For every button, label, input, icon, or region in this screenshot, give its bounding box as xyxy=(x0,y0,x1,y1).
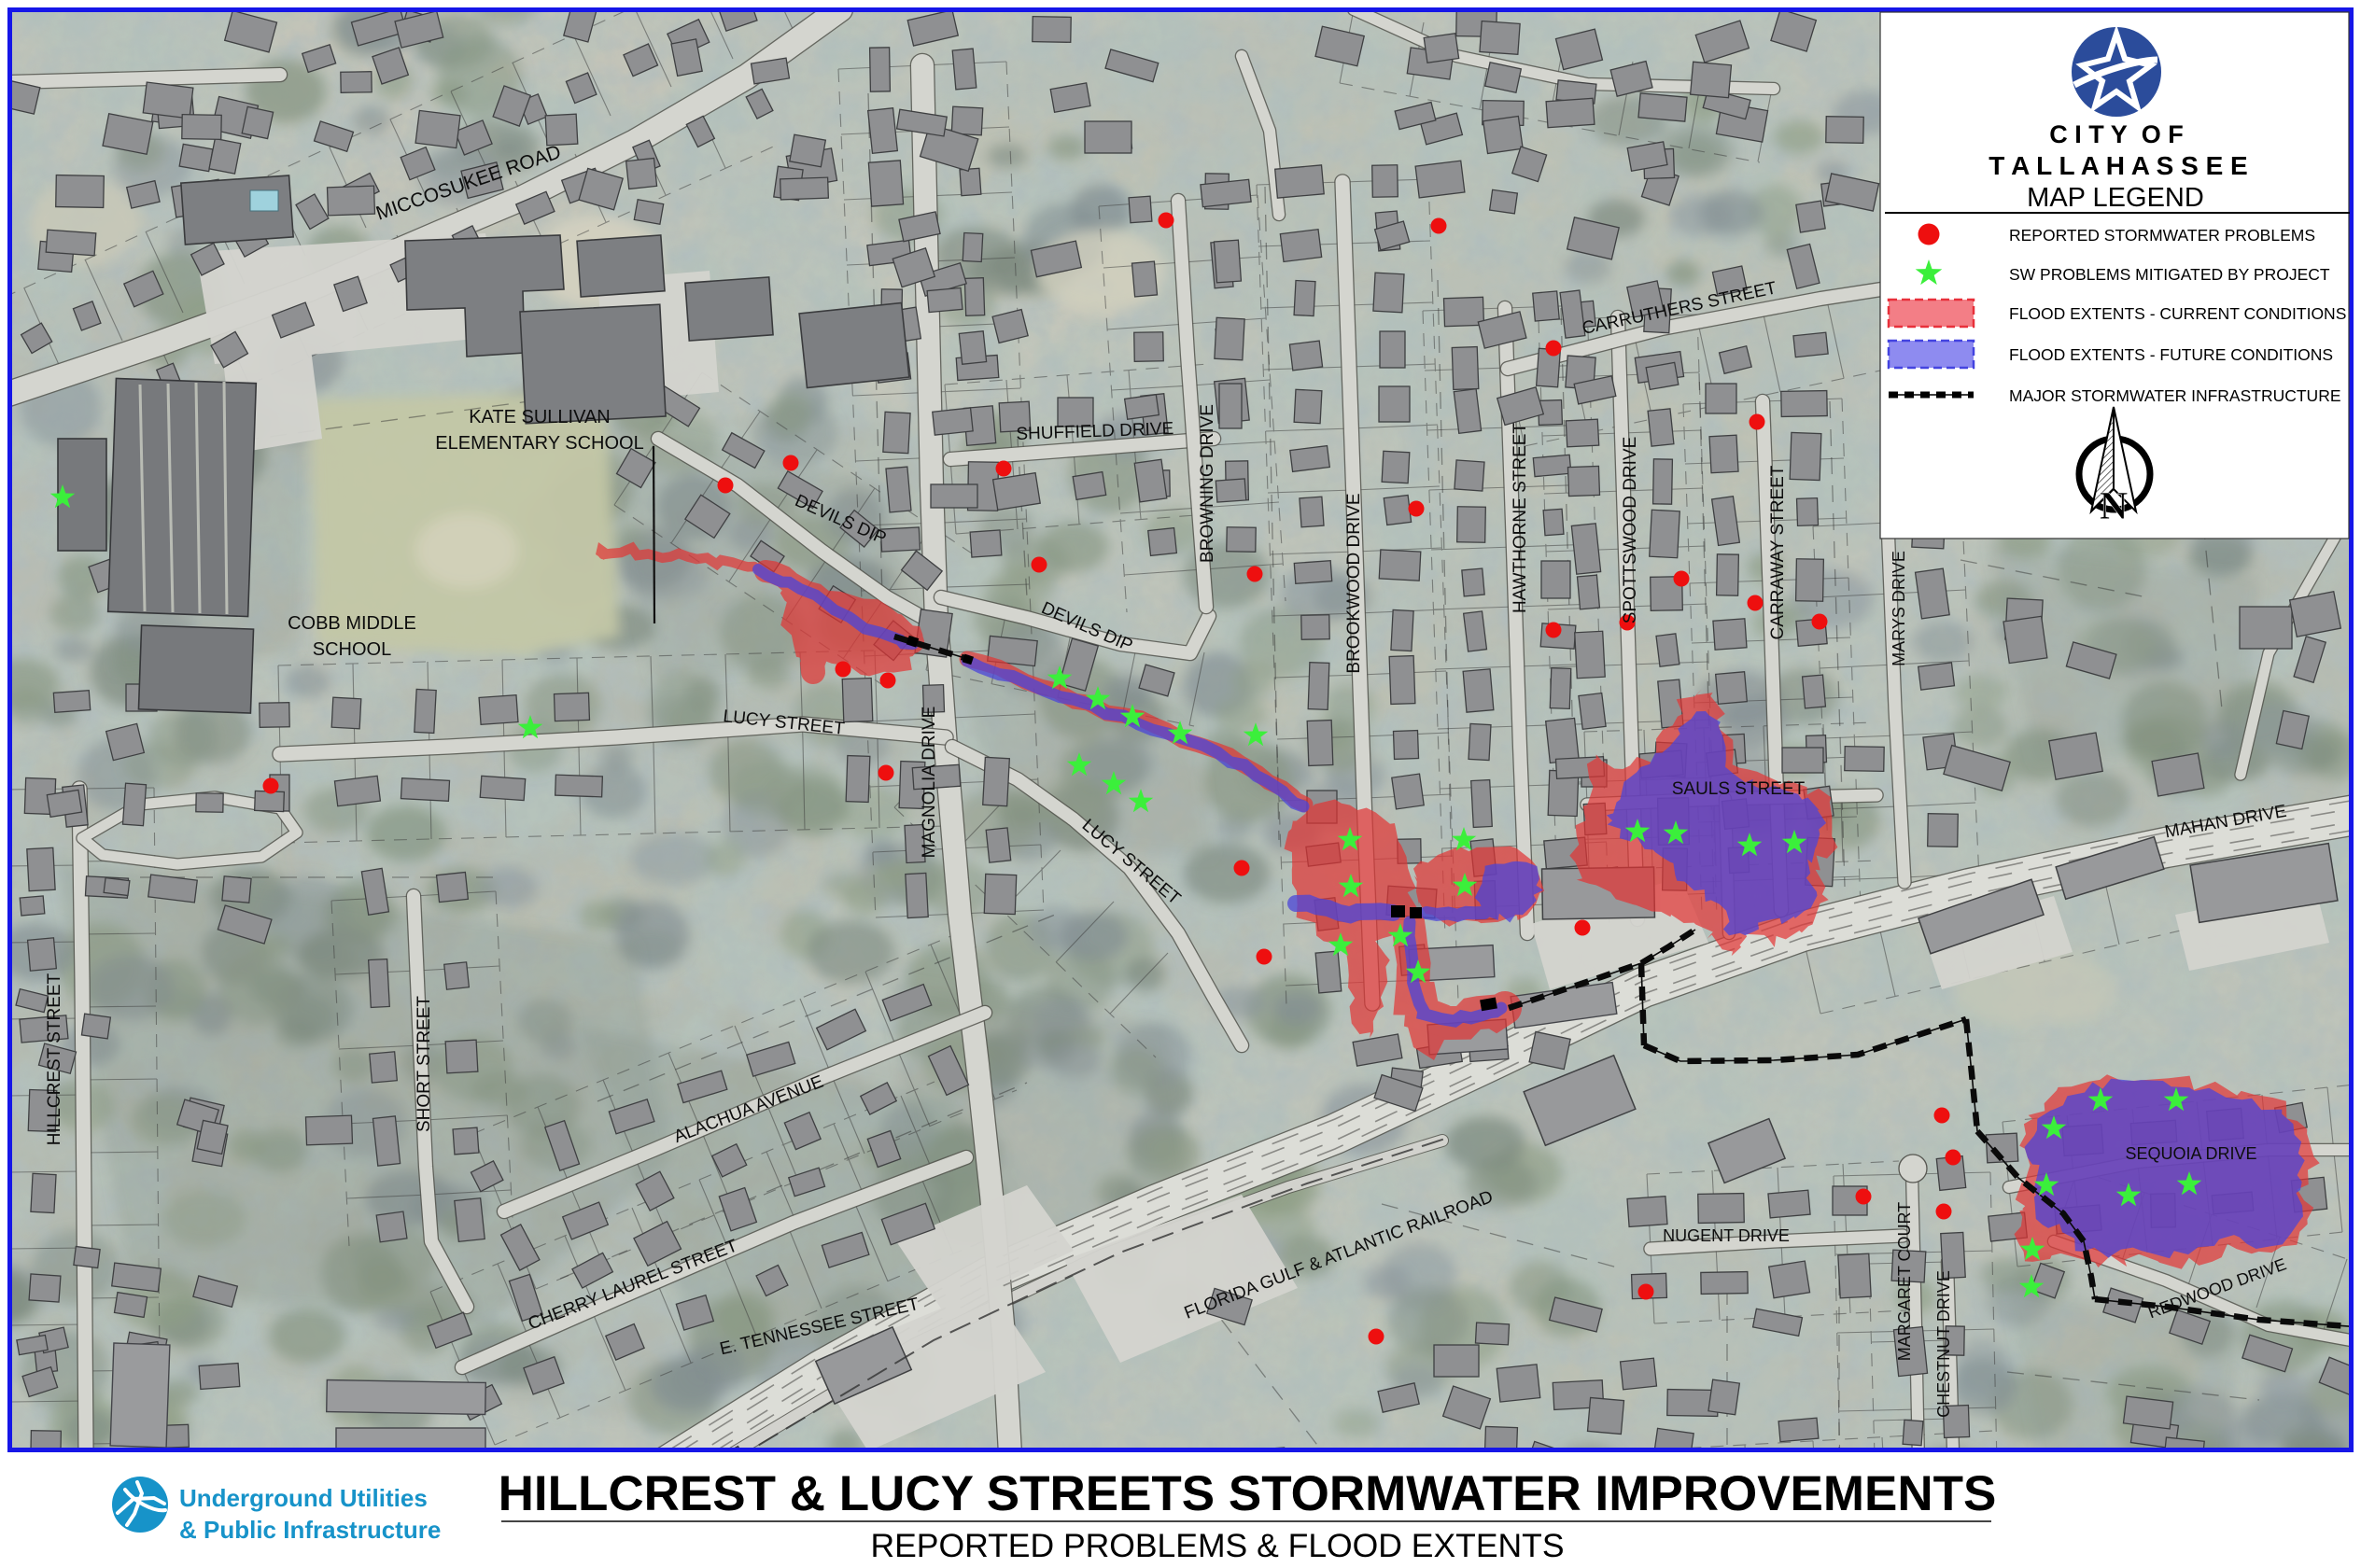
svg-text:NUGENT DRIVE: NUGENT DRIVE xyxy=(1663,1226,1790,1245)
svg-text:Underground Utilities: Underground Utilities xyxy=(179,1484,428,1512)
svg-text:CHESTNUT DRIVE: CHESTNUT DRIVE xyxy=(1934,1270,1953,1418)
svg-text:SHORT STREET: SHORT STREET xyxy=(415,996,434,1132)
svg-text:ELEMENTARY SCHOOL: ELEMENTARY SCHOOL xyxy=(435,433,643,454)
svg-text:HILLCREST STREET: HILLCREST STREET xyxy=(45,973,64,1145)
svg-text:KATE SULLIVAN: KATE SULLIVAN xyxy=(469,407,611,427)
svg-text:MAJOR STORMWATER INFRASTRUCTUR: MAJOR STORMWATER INFRASTRUCTURE xyxy=(2009,386,2341,405)
svg-text:CARRAWAY STREET: CARRAWAY STREET xyxy=(1768,465,1788,639)
svg-text:MAP LEGEND: MAP LEGEND xyxy=(2027,183,2204,213)
svg-text:BROWNING DRIVE: BROWNING DRIVE xyxy=(1198,404,1217,563)
svg-text:SPOTTSWOOD DRIVE: SPOTTSWOOD DRIVE xyxy=(1621,437,1640,624)
svg-text:MAGNOLIA DRIVE: MAGNOLIA DRIVE xyxy=(920,707,939,859)
svg-text:SEQUOIA DRIVE: SEQUOIA DRIVE xyxy=(2125,1144,2256,1163)
svg-text:BROOKWOOD DRIVE: BROOKWOOD DRIVE xyxy=(1344,493,1364,673)
svg-text:N: N xyxy=(2100,485,2128,528)
svg-text:REPORTED STORMWATER PROBLEMS: REPORTED STORMWATER PROBLEMS xyxy=(2009,226,2315,245)
svg-text:HAWTHORNE STREET: HAWTHORNE STREET xyxy=(1511,423,1530,613)
svg-text:COBB MIDDLE: COBB MIDDLE xyxy=(288,613,416,634)
svg-text:MARYS DRIVE: MARYS DRIVE xyxy=(1890,551,1908,666)
svg-text:C I T Y O F: C I T Y O F xyxy=(2049,120,2184,148)
svg-text:& Public Infrastructure: & Public Infrastructure xyxy=(179,1516,441,1544)
svg-text:MARGARET COURT: MARGARET COURT xyxy=(1895,1202,1914,1361)
svg-text:FLOOD EXTENTS - FUTURE CONDITI: FLOOD EXTENTS - FUTURE CONDITIONS xyxy=(2009,345,2333,364)
svg-text:T A L L A H A S S E E: T A L L A H A S S E E xyxy=(1989,151,2247,180)
svg-text:FLOOD EXTENTS - CURRENT CONDIT: FLOOD EXTENTS - CURRENT CONDITIONS xyxy=(2009,304,2346,323)
svg-text:SAULS STREET: SAULS STREET xyxy=(1672,779,1806,799)
svg-text:SW PROBLEMS MITIGATED BY PROJE: SW PROBLEMS MITIGATED BY PROJECT xyxy=(2009,265,2330,284)
svg-text:REPORTED PROBLEMS & FLOOD EXTE: REPORTED PROBLEMS & FLOOD EXTENTS xyxy=(870,1527,1564,1564)
svg-text:HILLCREST & LUCY STREETS STORM: HILLCREST & LUCY STREETS STORMWATER IMPR… xyxy=(499,1466,1997,1521)
svg-text:SCHOOL: SCHOOL xyxy=(313,639,391,660)
